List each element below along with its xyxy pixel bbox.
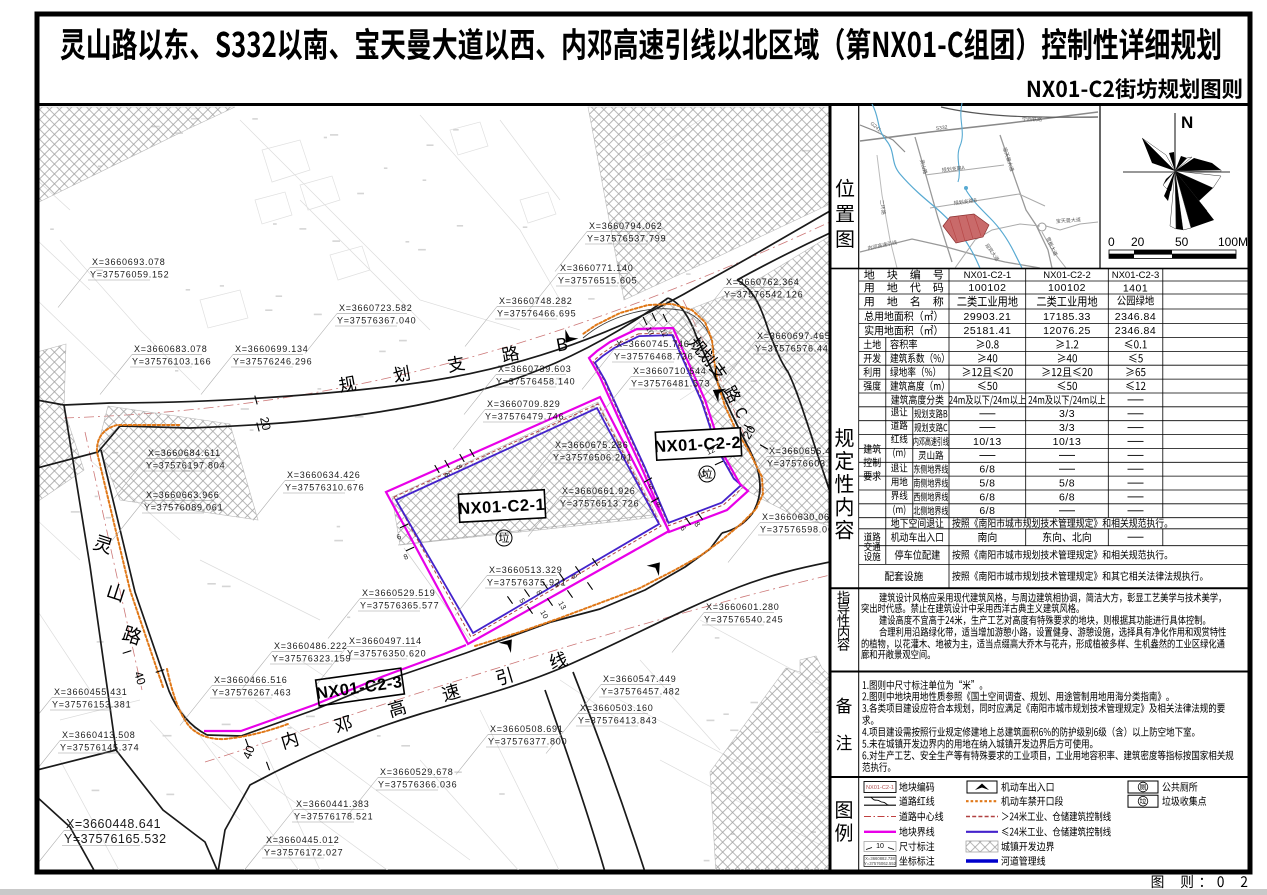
- svg-text:1401: 1401: [1123, 282, 1148, 294]
- svg-text:Y=37576172.027: Y=37576172.027: [264, 848, 343, 858]
- svg-text:12076.25: 12076.25: [1043, 325, 1091, 337]
- svg-text:Y=37576468.736: Y=37576468.736: [614, 352, 693, 362]
- svg-text:X=3660771.140: X=3660771.140: [560, 263, 634, 273]
- svg-text:Y=37576350.620: Y=37576350.620: [347, 649, 426, 659]
- svg-text:Y=37576178.521: Y=37576178.521: [294, 812, 373, 822]
- svg-text:X=3660513.329: X=3660513.329: [489, 565, 563, 575]
- svg-text:Y=37576598.064: Y=37576598.064: [760, 525, 839, 535]
- svg-text:X=3660630.060: X=3660630.060: [762, 512, 836, 522]
- svg-text:Y=37576089.061: Y=37576089.061: [144, 503, 223, 513]
- svg-text:X=3660497.114: X=3660497.114: [349, 636, 422, 646]
- svg-text:6/8: 6/8: [979, 491, 995, 503]
- svg-text:Y=37576513.726: Y=37576513.726: [560, 499, 639, 509]
- svg-text:X=3660455.431: X=3660455.431: [54, 687, 128, 697]
- svg-text:Y=37576481.573: Y=37576481.573: [631, 379, 710, 389]
- svg-text:X=3660663.966: X=3660663.966: [146, 490, 220, 500]
- svg-text:Y=37576542.126: Y=37576542.126: [724, 290, 803, 300]
- svg-text:Y=37576145.374: Y=37576145.374: [60, 743, 139, 753]
- svg-text:NX01-C2-3: NX01-C2-3: [1112, 270, 1160, 281]
- svg-text:100102: 100102: [968, 282, 1006, 294]
- svg-text:X=3660699.134: X=3660699.134: [235, 344, 309, 354]
- svg-text:Y=37576062.552: Y=37576062.552: [864, 861, 897, 866]
- svg-text:100102: 100102: [1048, 282, 1086, 294]
- svg-text:Y=37576466.695: Y=37576466.695: [497, 309, 576, 319]
- svg-text:Y=37576103.166: Y=37576103.166: [132, 357, 211, 367]
- svg-text:Y=37576267.463: Y=37576267.463: [212, 688, 291, 698]
- svg-text:Y=37576246.296: Y=37576246.296: [233, 357, 312, 367]
- svg-text:X=3660413.508: X=3660413.508: [62, 730, 136, 740]
- svg-text:X=3660745.746: X=3660745.746: [616, 339, 690, 349]
- svg-text:Y=37576457.482: Y=37576457.482: [601, 687, 680, 697]
- svg-text:X=3660529.519: X=3660529.519: [362, 588, 436, 598]
- svg-text:X=3660723.582: X=3660723.582: [339, 303, 413, 313]
- svg-text:X=3660661.926: X=3660661.926: [562, 486, 636, 496]
- svg-text:Y=37576377.800: Y=37576377.800: [488, 737, 567, 747]
- svg-text:X=3660794.062: X=3660794.062: [589, 221, 663, 231]
- svg-text:Y=37576458.140: Y=37576458.140: [496, 377, 575, 387]
- svg-text:X=3660448.641: X=3660448.641: [66, 817, 161, 831]
- svg-text:Y=37576310.676: Y=37576310.676: [285, 483, 364, 493]
- svg-text:X=3660709.829: X=3660709.829: [487, 399, 561, 409]
- svg-text:Y=37576367.040: Y=37576367.040: [337, 316, 416, 326]
- svg-text:X=3660529.678: X=3660529.678: [380, 767, 454, 777]
- svg-text:Y=37576515.605: Y=37576515.605: [558, 276, 637, 286]
- svg-text:X=3660601.280: X=3660601.280: [706, 602, 780, 612]
- svg-text:X=3660466.516: X=3660466.516: [214, 675, 288, 685]
- svg-text:29903.21: 29903.21: [964, 311, 1012, 323]
- svg-text:X=3660547.449: X=3660547.449: [603, 674, 677, 684]
- svg-text:3/3: 3/3: [1059, 422, 1075, 434]
- svg-text:X=3660508.691: X=3660508.691: [490, 724, 564, 734]
- svg-text:Y=37576506.201: Y=37576506.201: [553, 453, 632, 463]
- svg-text:X=3660710.644: X=3660710.644: [633, 366, 707, 376]
- svg-text:Y=37576413.843: Y=37576413.843: [578, 716, 657, 726]
- svg-text:X=3660486.222: X=3660486.222: [274, 641, 348, 651]
- svg-text:Y=37576165.532: Y=37576165.532: [64, 832, 167, 846]
- svg-text:3/3: 3/3: [1059, 408, 1075, 420]
- svg-text:Y=37576479.746: Y=37576479.746: [485, 412, 564, 422]
- svg-text:Y=37576059.152: Y=37576059.152: [90, 270, 169, 280]
- svg-text:X=3660683.078: X=3660683.078: [134, 344, 208, 354]
- svg-text:5/8: 5/8: [1059, 478, 1075, 490]
- svg-text:100M: 100M: [1218, 235, 1248, 249]
- svg-text:Y=37576153.381: Y=37576153.381: [52, 700, 131, 710]
- svg-text:6/8: 6/8: [1059, 491, 1075, 503]
- svg-text:X=3660693.078: X=3660693.078: [92, 257, 166, 267]
- svg-text:X=3660503.160: X=3660503.160: [580, 703, 654, 713]
- svg-text:X=3660634.426: X=3660634.426: [287, 470, 361, 480]
- svg-text:2346.84: 2346.84: [1115, 325, 1156, 337]
- svg-text:X=3660739.603: X=3660739.603: [498, 364, 572, 374]
- svg-text:X=3660762.364: X=3660762.364: [726, 277, 800, 287]
- svg-text:6/8: 6/8: [979, 464, 995, 476]
- svg-text:NX01-C2-1: NX01-C2-1: [866, 785, 894, 791]
- svg-text:Y=37576366.036: Y=37576366.036: [378, 780, 457, 790]
- svg-text:Y=37576197.804: Y=37576197.804: [146, 461, 225, 471]
- svg-text:6/8: 6/8: [979, 505, 995, 517]
- svg-text:25181.41: 25181.41: [964, 325, 1012, 337]
- svg-text:0: 0: [1108, 235, 1115, 249]
- svg-text:X=3660684.611: X=3660684.611: [148, 448, 221, 458]
- svg-text:X=3660445.012: X=3660445.012: [266, 835, 340, 845]
- svg-text:50: 50: [1175, 235, 1189, 249]
- svg-text:10/13: 10/13: [973, 436, 1002, 448]
- svg-text:X=3660675.286: X=3660675.286: [555, 440, 629, 450]
- svg-text:10: 10: [876, 843, 884, 850]
- svg-text:Y=37576537.799: Y=37576537.799: [587, 234, 666, 244]
- svg-text:NX01-C2-2: NX01-C2-2: [1043, 270, 1091, 281]
- svg-text:N: N: [1181, 113, 1193, 132]
- svg-text:10/13: 10/13: [1053, 436, 1082, 448]
- svg-text:2346.84: 2346.84: [1115, 311, 1156, 323]
- svg-text:20: 20: [1131, 235, 1145, 249]
- svg-text:X=3660697.465: X=3660697.465: [757, 331, 831, 341]
- svg-text:Y=37576365.577: Y=37576365.577: [360, 601, 439, 611]
- svg-text:X=3660441.383: X=3660441.383: [296, 799, 370, 809]
- svg-text:NX01-C2-1: NX01-C2-1: [964, 270, 1012, 281]
- svg-text:17185.33: 17185.33: [1043, 311, 1091, 323]
- svg-text:Y=37576323.159: Y=37576323.159: [272, 654, 351, 664]
- svg-text:Y=37576576.444: Y=37576576.444: [755, 344, 834, 354]
- svg-text:X=3660748.282: X=3660748.282: [499, 296, 573, 306]
- svg-text:Y=37576540.245: Y=37576540.245: [704, 615, 783, 625]
- svg-text:5/8: 5/8: [979, 478, 995, 490]
